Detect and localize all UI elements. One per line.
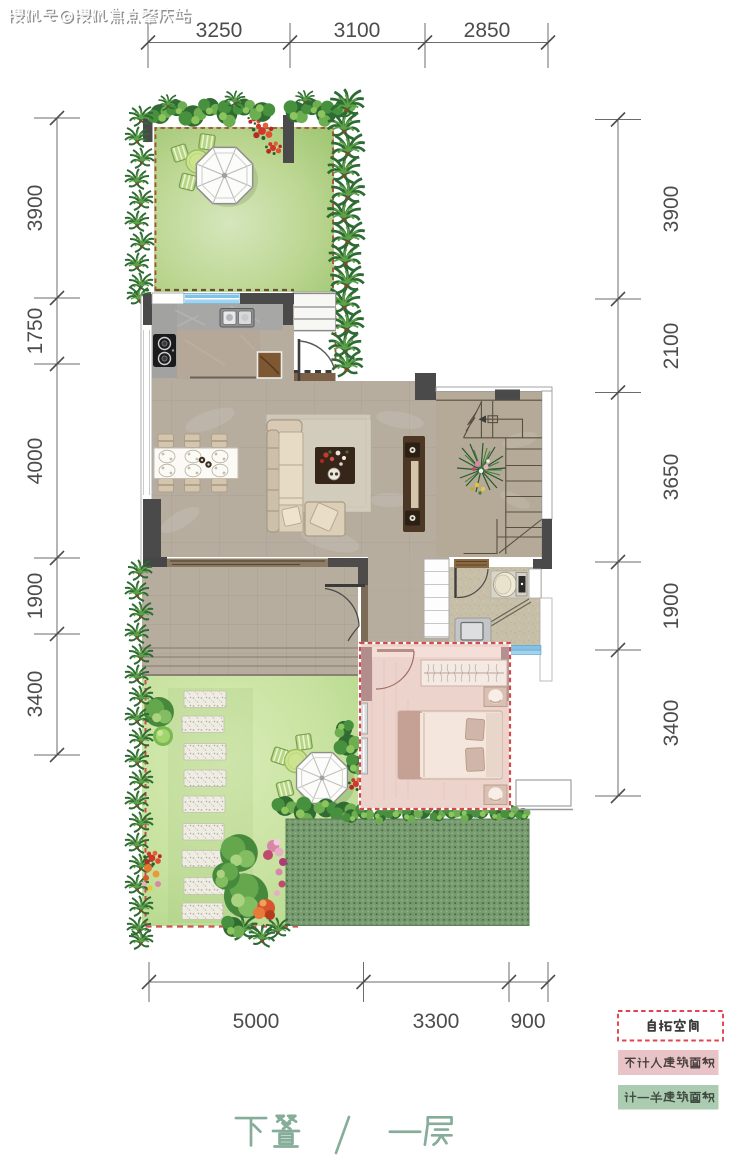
svg-text:1900: 1900 — [660, 583, 683, 630]
svg-text:3100: 3100 — [334, 19, 381, 42]
svg-text:5000: 5000 — [233, 1010, 280, 1033]
svg-text:1900: 1900 — [24, 573, 47, 620]
svg-text:3300: 3300 — [413, 1010, 460, 1033]
svg-text:3900: 3900 — [660, 186, 683, 233]
svg-text:2100: 2100 — [660, 323, 683, 370]
svg-text:900: 900 — [510, 1010, 545, 1033]
svg-text:2850: 2850 — [464, 19, 511, 42]
svg-text:1750: 1750 — [24, 308, 47, 355]
svg-text:4000: 4000 — [24, 438, 47, 485]
svg-text:3250: 3250 — [196, 19, 243, 42]
svg-text:3900: 3900 — [24, 185, 47, 232]
svg-text:3400: 3400 — [24, 671, 47, 718]
svg-text:3650: 3650 — [660, 454, 683, 501]
svg-text:3400: 3400 — [660, 700, 683, 747]
